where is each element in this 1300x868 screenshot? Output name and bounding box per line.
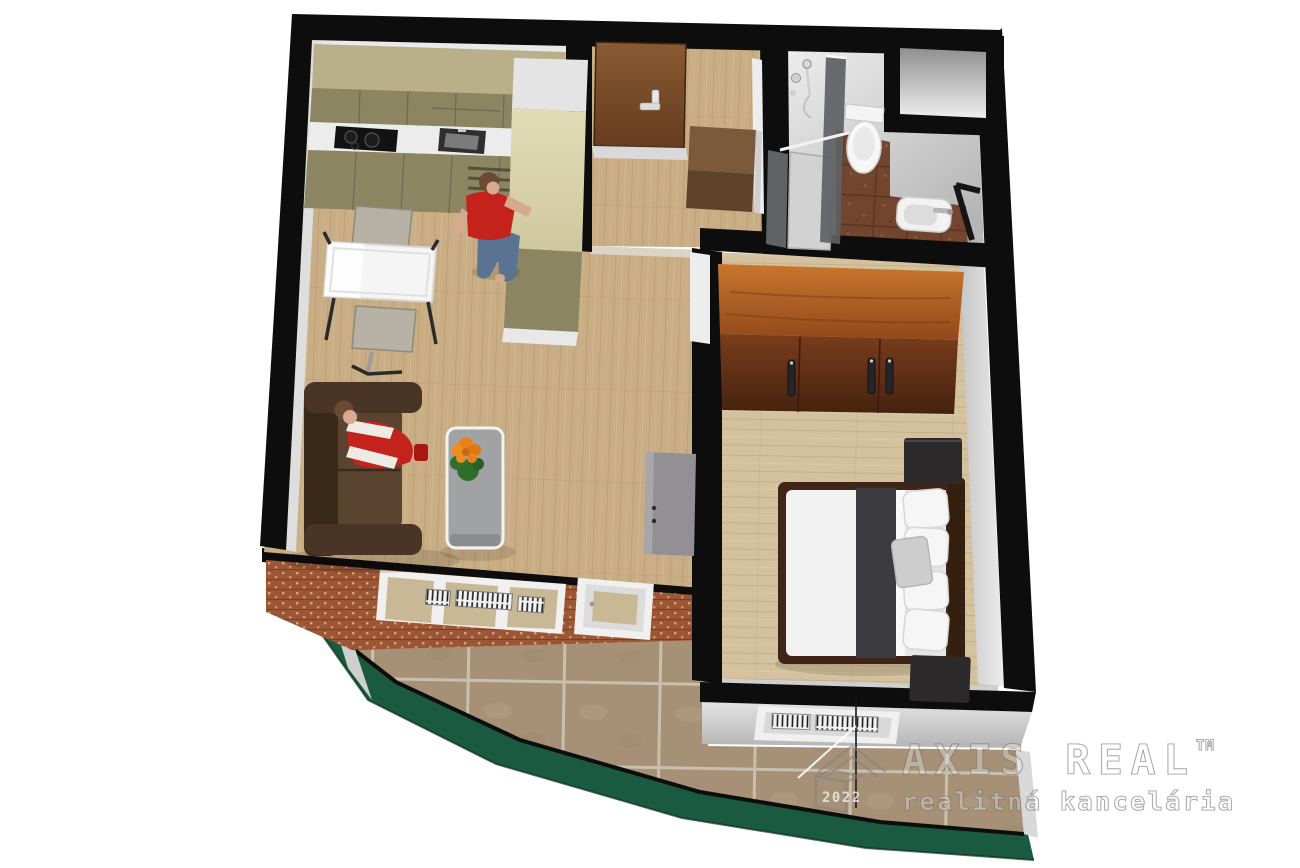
wardrobe-top: [718, 264, 964, 340]
window-radiator-2: [456, 590, 513, 610]
foot: [495, 274, 505, 282]
trademark-text: TM: [1196, 738, 1215, 754]
sideboard-group: [644, 452, 696, 556]
double-bed: [778, 478, 965, 668]
accent-pillow: [891, 536, 933, 589]
bedroom-radiator-left: [772, 713, 811, 729]
coffee-table-edge: [450, 534, 500, 546]
book: [414, 444, 428, 461]
bed-runner: [856, 488, 896, 658]
window-radiator-3: [517, 596, 544, 613]
headboard: [948, 478, 965, 668]
face: [487, 182, 500, 195]
balcony-door: [574, 576, 654, 640]
balcony-door-handle: [590, 602, 595, 607]
wardrobe-front: [720, 334, 958, 414]
tagline-text: realitná kancelária: [902, 787, 1235, 816]
entrance-door: [594, 42, 686, 148]
cooktop: [334, 126, 398, 152]
face: [343, 410, 357, 424]
shower-glass-side: [766, 150, 788, 248]
nightstand-bottom: [909, 655, 971, 703]
wardrobe: [718, 264, 964, 414]
washbasin: [896, 196, 953, 233]
shaft-niche-recess: [900, 48, 986, 118]
floor-plan-render: 2022 AXIS REAL TM realitná kancelária: [0, 0, 1300, 868]
logo-year: 2022: [822, 790, 862, 806]
dining-chair-2: [352, 306, 416, 352]
sofa-armrest-bottom: [304, 524, 422, 555]
door-threshold: [592, 146, 688, 160]
brand-text: AXIS REAL: [902, 736, 1196, 784]
sofa-armrest-top: [304, 382, 422, 413]
floor-plan-canvas: 2022 AXIS REAL TM realitná kancelária: [0, 0, 1300, 868]
shoe-cabinet: [686, 126, 762, 214]
faucet: [458, 129, 466, 132]
bedroom-radiator-right: [816, 715, 878, 732]
bedroom-door-frame: [690, 252, 710, 344]
nightstand-top: [904, 438, 962, 484]
window-radiator-1: [425, 589, 450, 606]
kitchen-sink: [438, 128, 486, 154]
